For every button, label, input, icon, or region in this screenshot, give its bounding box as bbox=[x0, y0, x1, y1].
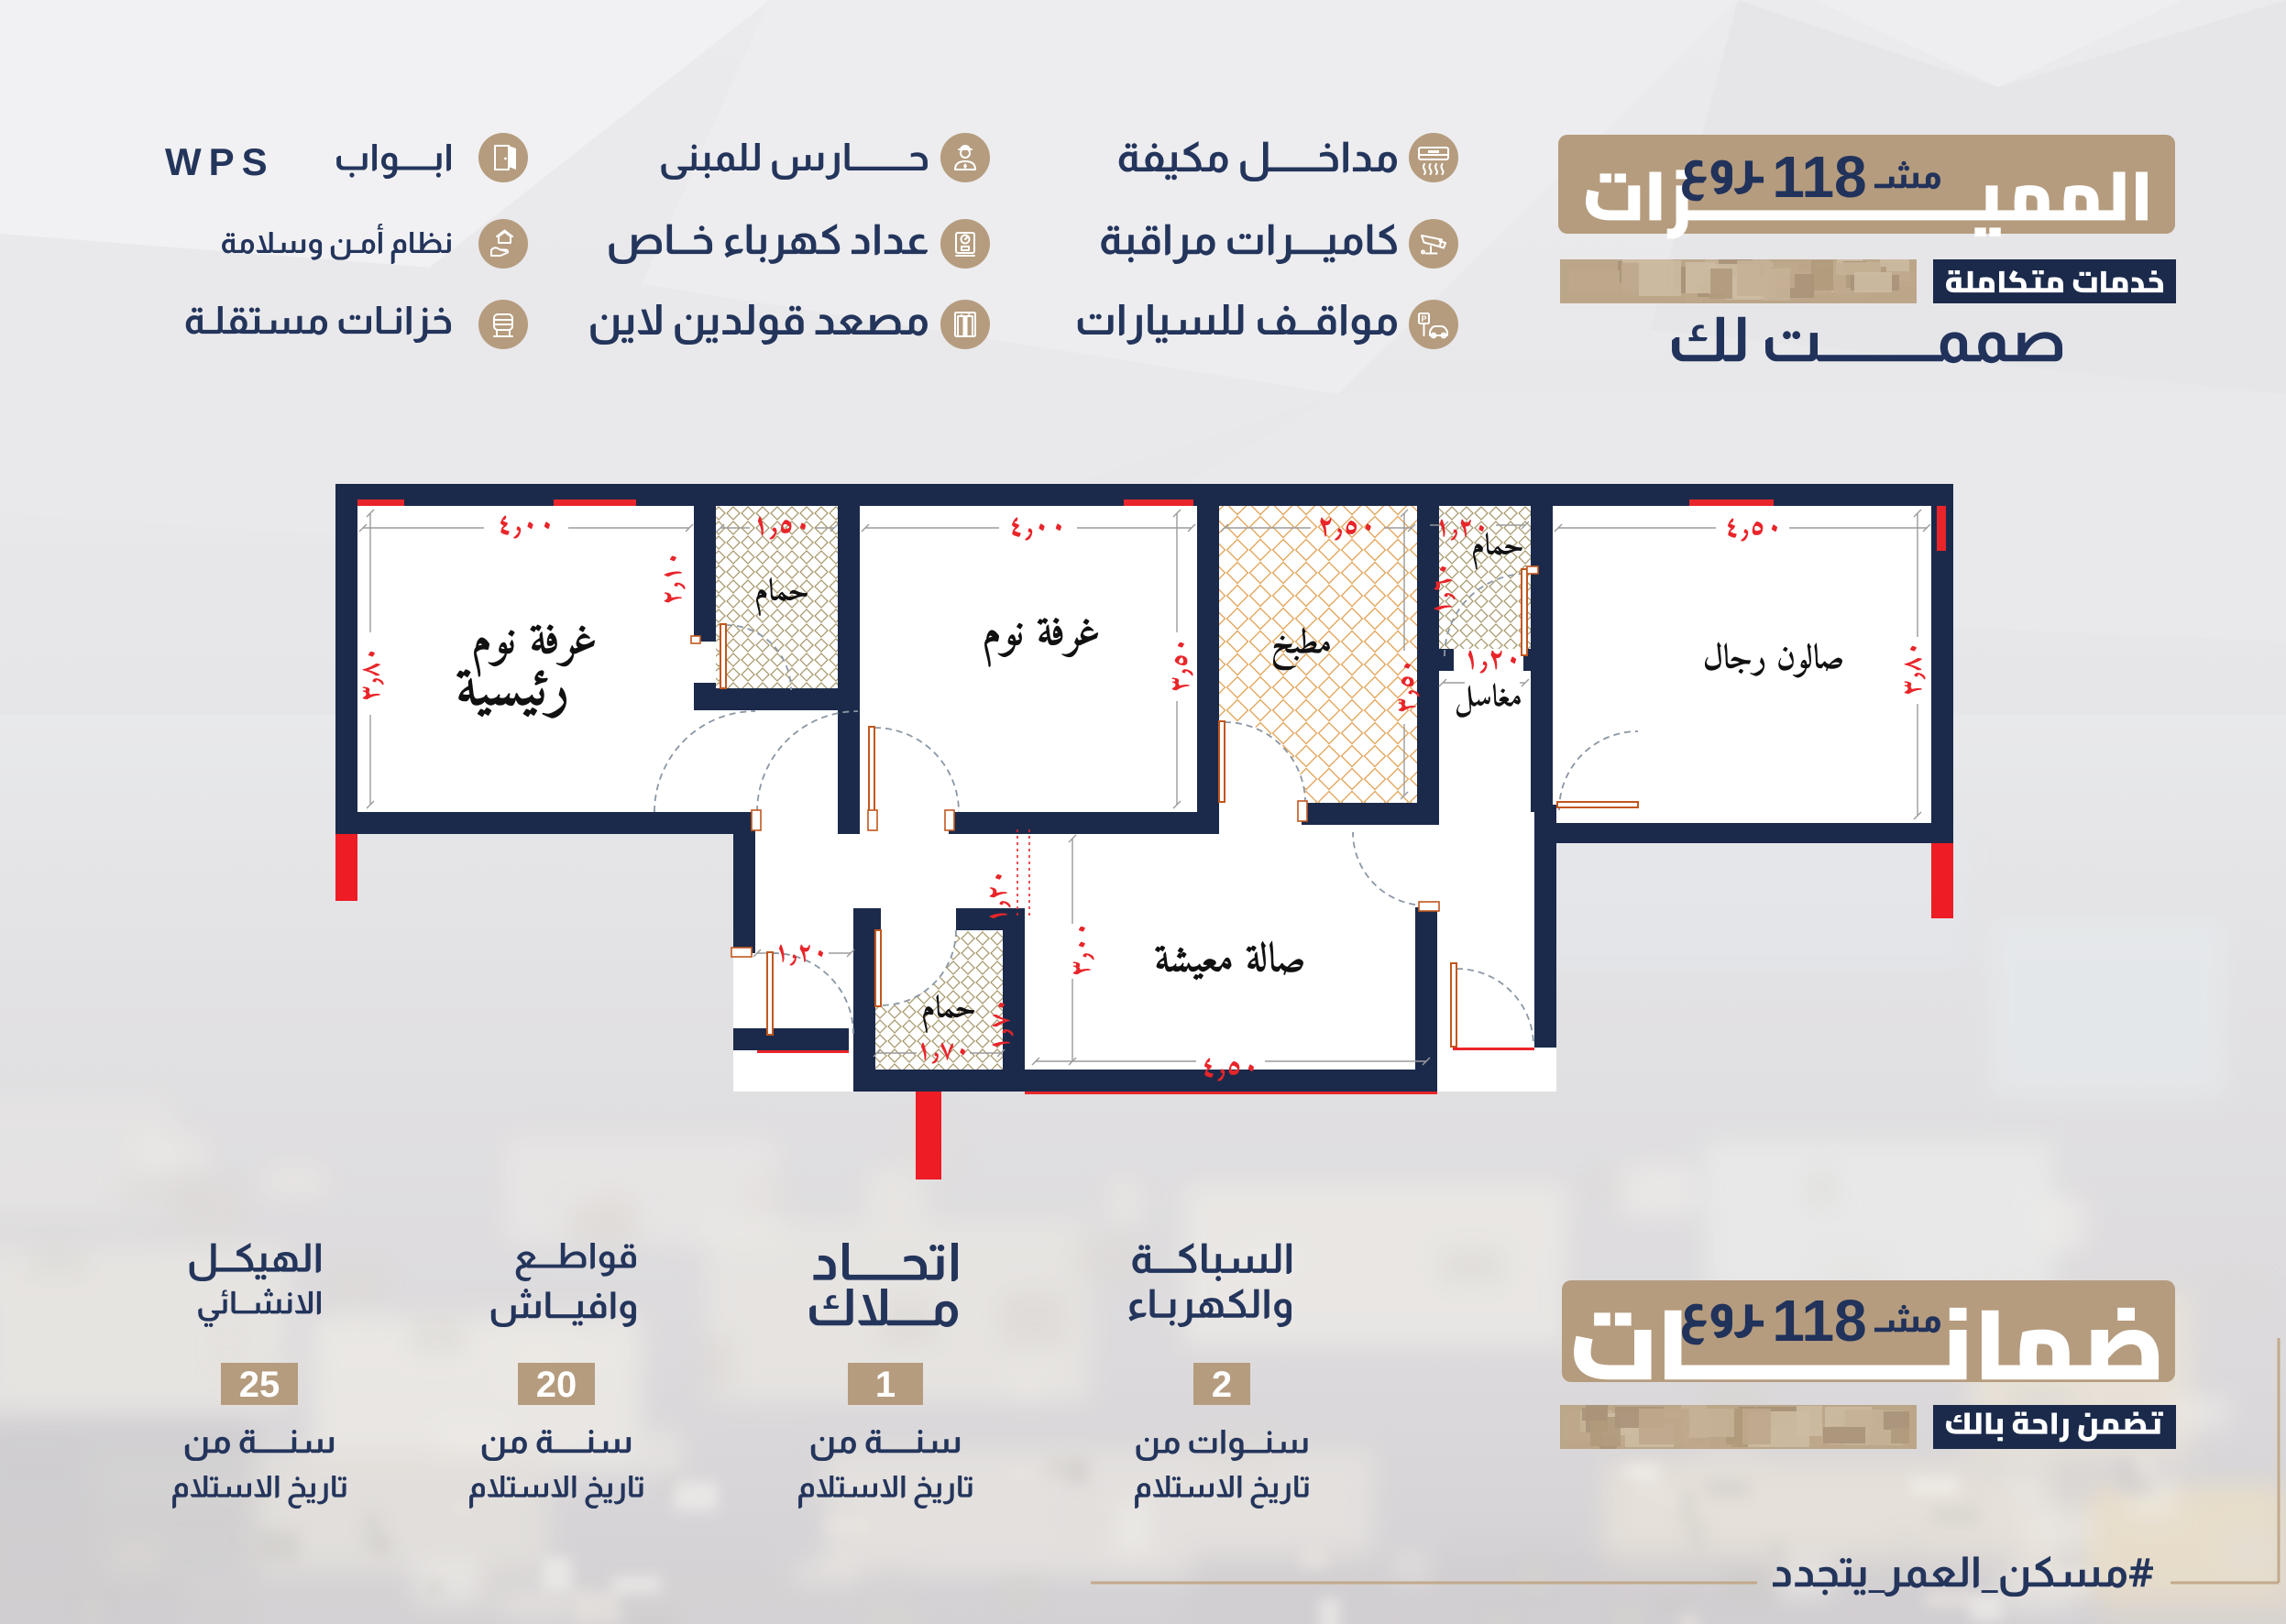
svg-text:2: 2 bbox=[1212, 1365, 1232, 1405]
svg-text:118: 118 bbox=[1772, 144, 1866, 210]
svg-text:P: P bbox=[1421, 314, 1426, 324]
svg-text:1: 1 bbox=[875, 1365, 896, 1405]
svg-text:WPS: WPS bbox=[165, 140, 275, 183]
svg-text:25: 25 bbox=[239, 1365, 280, 1405]
svg-text:118: 118 bbox=[1772, 1288, 1866, 1354]
svg-text:20: 20 bbox=[536, 1365, 577, 1405]
